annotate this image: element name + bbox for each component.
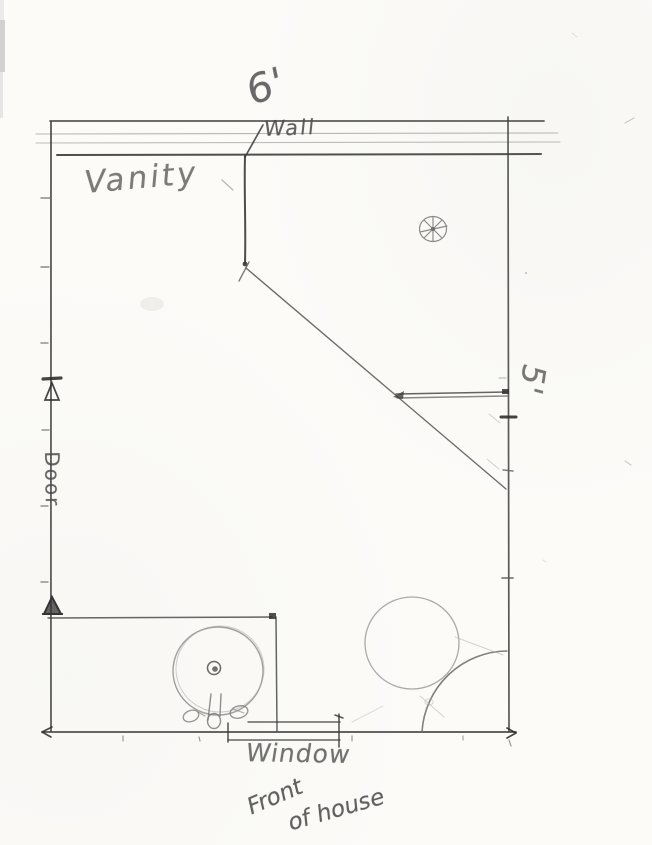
wall-label-leader-line [245,125,263,157]
door-jamb-marker-bottom [42,597,63,614]
door-jamb-marker-top [43,378,61,400]
vanity-partition-wall [239,156,249,281]
corner-fixture-circle [352,597,507,732]
left-wall [41,122,51,731]
diagonal-wall [246,268,506,489]
pedestal-sink-icon [173,626,264,729]
label-window: Window [244,738,353,769]
cabinet-outline [48,613,277,731]
scan-edge-artifacts [0,0,5,118]
floor-plan-sketch: 6' Wall Vanity 5' Door Window Front of h… [0,0,652,845]
ceiling-light-icon [420,217,448,242]
label-wall: Wall [263,115,317,141]
top-wall [36,118,634,155]
sketch-geometry [0,0,652,845]
shelf-line [393,389,509,399]
right-wall [487,117,516,731]
stray-pencil-marks [140,33,631,562]
label-door: Door [40,451,65,508]
